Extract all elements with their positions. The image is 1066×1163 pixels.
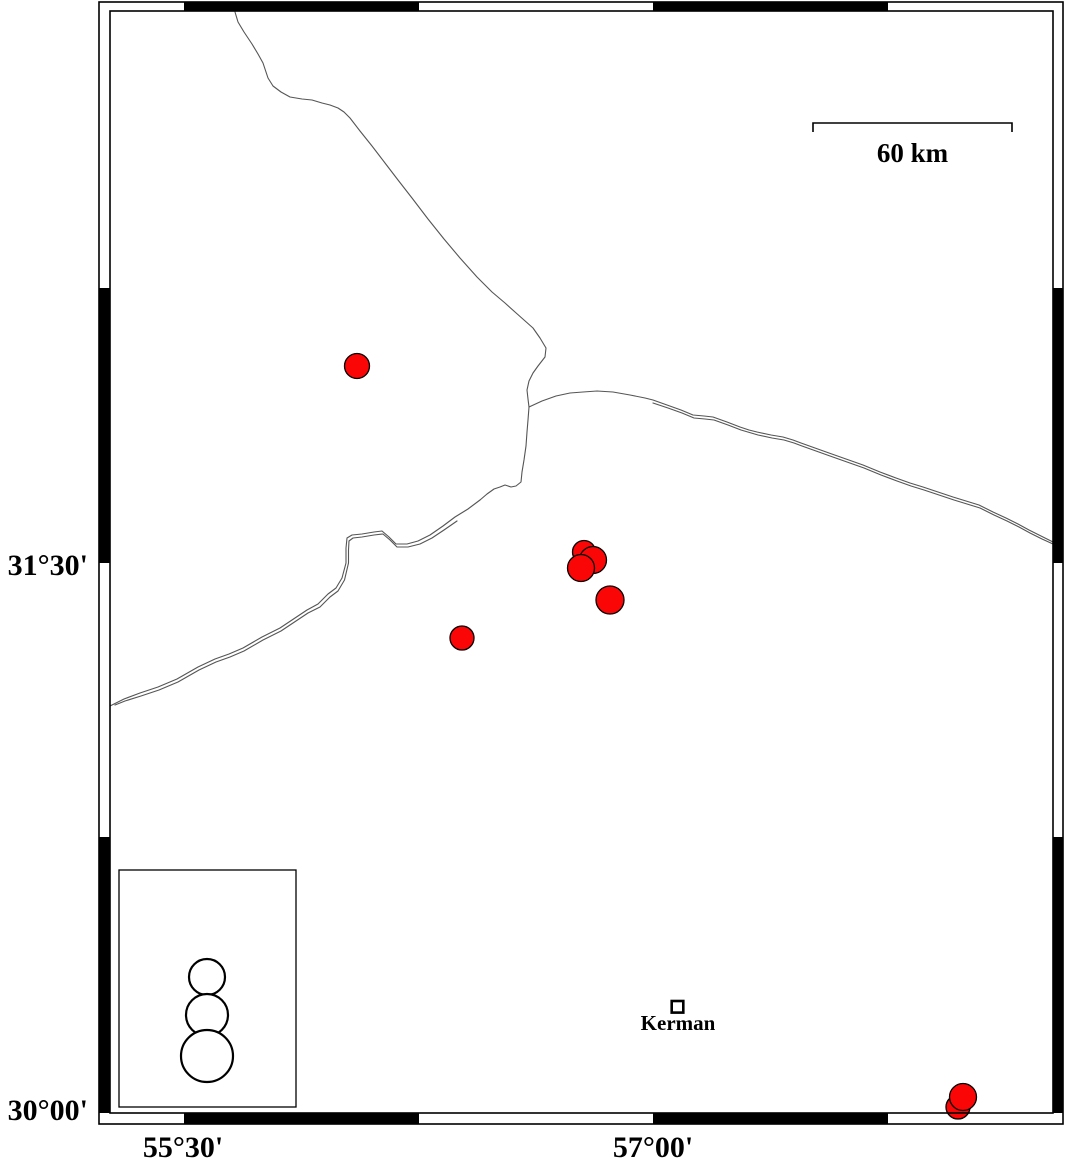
epicenter-circle bbox=[596, 586, 624, 614]
fault-east-strand-2 bbox=[653, 403, 1053, 544]
city-label-kerman: Kerman bbox=[598, 1012, 758, 1034]
fault-east-strand-1 bbox=[529, 391, 1053, 542]
longitude-label-57-00: 57°00' bbox=[573, 1133, 733, 1163]
epicenter-circle bbox=[950, 1084, 977, 1111]
epicenter-circle bbox=[568, 555, 595, 582]
latitude-label-31-30: 31°30' bbox=[0, 551, 88, 581]
fault-north-south bbox=[235, 12, 546, 500]
frame-top-black-segment bbox=[184, 2, 419, 11]
frame-left-black-segment bbox=[99, 288, 110, 563]
scale-bar-label: 60 km bbox=[813, 139, 1012, 167]
frame-top-black-segment bbox=[653, 2, 888, 11]
frame-bottom-black-segment bbox=[653, 1113, 888, 1124]
legend-magnitude-circle bbox=[181, 1030, 233, 1082]
map-figure: 31°30' 30°00' 55°30' 57°00' 60 km Kerman bbox=[0, 0, 1066, 1163]
frame-right-black-segment bbox=[1053, 837, 1063, 1113]
frame-right-black-segment bbox=[1053, 288, 1063, 563]
longitude-label-55-30: 55°30' bbox=[103, 1133, 263, 1163]
map-svg bbox=[0, 0, 1066, 1163]
scale-bar-bracket bbox=[813, 123, 1012, 132]
epicenter-circle bbox=[345, 354, 370, 379]
frame-bottom-black-segment bbox=[184, 1113, 419, 1124]
epicenter-circle bbox=[450, 626, 474, 650]
legend-magnitude-circle bbox=[189, 959, 225, 995]
fault-southwest-strand-2 bbox=[115, 521, 457, 705]
fault-southwest-strand-1 bbox=[110, 500, 480, 706]
frame-left-black-segment bbox=[99, 837, 110, 1113]
latitude-label-30-00: 30°00' bbox=[0, 1096, 88, 1126]
